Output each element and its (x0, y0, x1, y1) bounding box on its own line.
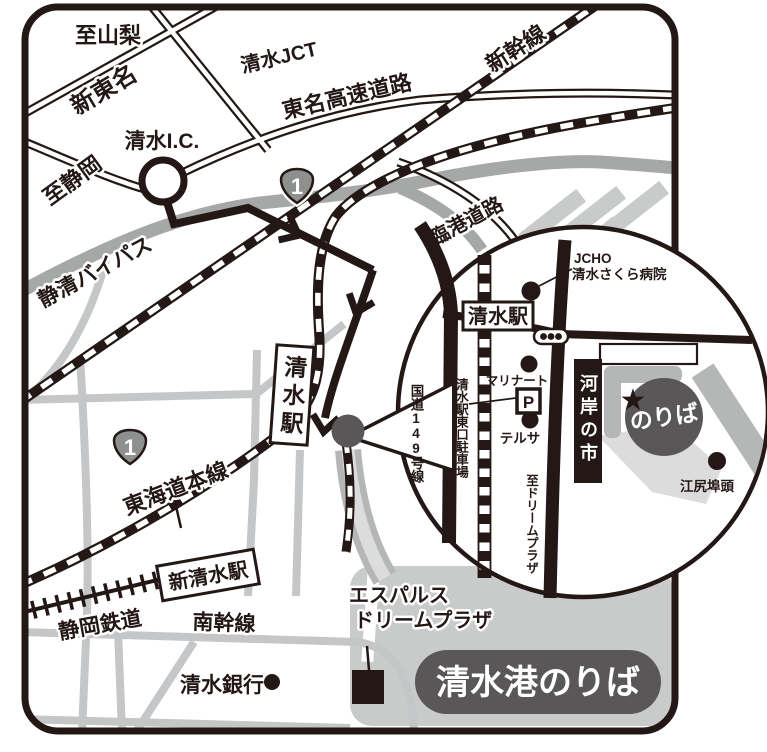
label-east-parking: 清水駅東口駐車場 (454, 377, 469, 479)
dream-plaza-square (352, 670, 384, 704)
station-area-dot (332, 415, 365, 448)
hospital-dot (522, 282, 541, 301)
label-shimizu-ic: 清水I.C. (125, 129, 200, 153)
label-hospital-2: 清水さくら病院 (572, 266, 667, 282)
label-to-yamanashi: 至山梨 (75, 23, 141, 48)
label-kashi-no-ichi: 河岸の市 (578, 374, 598, 466)
label-route149: 国道149号線 (409, 384, 425, 485)
route1-badge-south: 1 (114, 430, 146, 464)
label-to-dream-plaza: 至ドリームプラザ (524, 474, 538, 574)
label-espulse-1: エスパルス (349, 584, 449, 607)
label-ejiri-wharf: 江尻埠頭 (680, 478, 734, 494)
terrsa-dot (522, 412, 539, 429)
quay-band-left (604, 366, 621, 438)
marinart-dot (521, 356, 538, 373)
parking-mark: P (523, 393, 534, 412)
label-hospital-1: JCHO (574, 251, 612, 266)
port-title-label: 清水港のりば (436, 664, 640, 702)
label-terrsa: テルサ (500, 431, 541, 446)
label-shimizu-bank: 清水銀行 (180, 673, 264, 697)
parking-box: P (517, 389, 540, 413)
label-marinart: マリナート (486, 374, 549, 388)
route1-badge-north: 1 (281, 169, 313, 203)
route1-number: 1 (124, 435, 136, 460)
map-canvas: 至山梨 新東名 清水JCT 東名高速道路 新幹線 清水I.C. 至静岡 静清バイ… (0, 0, 767, 747)
access-map: 至山梨 新東名 清水JCT 東名高速道路 新幹線 清水I.C. 至静岡 静清バイ… (0, 0, 767, 747)
label-inset-station: 清水駅 (468, 304, 528, 328)
route1-number: 1 (291, 174, 303, 199)
traffic-signal-icon (534, 329, 568, 344)
label-espulse-2: ドリームプラザ (354, 609, 492, 632)
shimizu-ic-circle (142, 160, 184, 202)
shimizu-station-box: 清水駅 (270, 345, 314, 445)
label-minami-kansen: 南幹線 (192, 610, 256, 636)
shimizu-bank-dot (264, 674, 280, 690)
ejiri-wharf-dot (708, 452, 726, 470)
market-building (600, 344, 697, 364)
